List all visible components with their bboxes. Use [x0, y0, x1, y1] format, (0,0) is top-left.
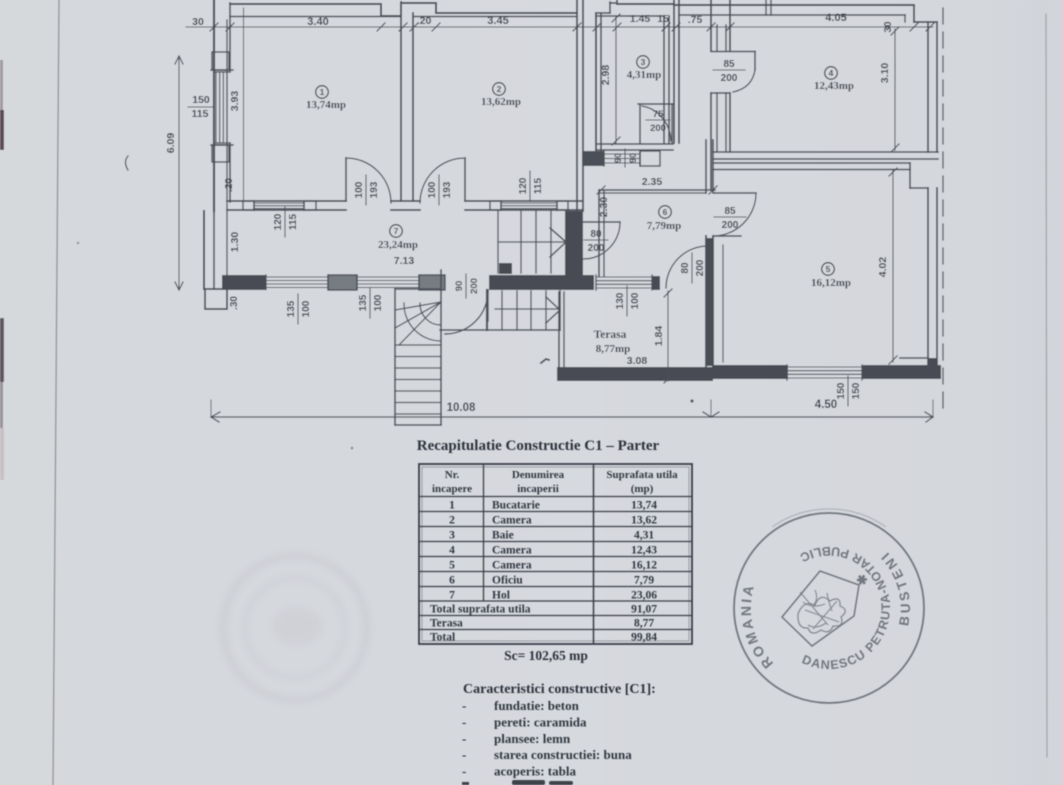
svg-text:30: 30	[192, 16, 204, 28]
svg-text:115: 115	[288, 213, 299, 230]
svg-text:Total: Total	[430, 632, 455, 644]
svg-text:200: 200	[469, 278, 480, 294]
svg-text:13,74mp: 13,74mp	[306, 99, 346, 111]
svg-text:85: 85	[724, 206, 736, 217]
svg-text:Hol: Hol	[492, 590, 510, 602]
svg-text:135: 135	[358, 294, 369, 311]
svg-text:13,74: 13,74	[631, 500, 657, 512]
svg-text:200: 200	[721, 73, 738, 84]
svg-text:120: 120	[273, 213, 284, 230]
svg-text:15: 15	[657, 13, 669, 25]
svg-text:plansee: lemn: plansee: lemn	[494, 731, 571, 746]
svg-text:5: 5	[826, 264, 831, 274]
svg-text:10.08: 10.08	[447, 402, 476, 414]
svg-text:90: 90	[613, 153, 623, 163]
svg-text:-: -	[462, 764, 466, 779]
svg-text:3.40: 3.40	[307, 16, 328, 28]
svg-text:200: 200	[722, 220, 739, 231]
svg-text:-: -	[462, 747, 466, 762]
svg-text:2: 2	[497, 84, 502, 94]
svg-text:16,12: 16,12	[631, 560, 657, 572]
svg-text:7,79: 7,79	[634, 575, 654, 587]
svg-text:7.13: 7.13	[394, 255, 415, 267]
svg-text:90: 90	[628, 153, 638, 163]
svg-text:75: 75	[653, 109, 664, 120]
svg-text:1.30: 1.30	[229, 232, 241, 253]
svg-text:.20: .20	[224, 178, 235, 192]
svg-text:13,62mp: 13,62mp	[481, 96, 521, 108]
svg-text:.20: .20	[417, 15, 432, 27]
svg-text:Oficiu: Oficiu	[492, 575, 523, 587]
svg-text:100: 100	[630, 292, 641, 309]
svg-text:7: 7	[449, 590, 455, 602]
svg-text:30: 30	[883, 21, 894, 33]
svg-text:3.45: 3.45	[487, 15, 508, 27]
svg-text:4,31mp: 4,31mp	[627, 69, 662, 81]
svg-text:Baie: Baie	[492, 530, 514, 542]
svg-text:6: 6	[449, 575, 455, 587]
svg-text:4: 4	[829, 68, 834, 78]
svg-text:100: 100	[427, 181, 438, 198]
svg-text:1: 1	[320, 87, 325, 97]
svg-text:4.50: 4.50	[815, 399, 837, 411]
svg-text:1.45: 1.45	[630, 13, 651, 25]
svg-text:-: -	[462, 731, 466, 746]
svg-text:4,31: 4,31	[634, 530, 654, 542]
svg-text:Recapitulatie Constructie C1 –: Recapitulatie Constructie C1 – Parter	[417, 438, 660, 454]
svg-text:200: 200	[588, 243, 605, 254]
svg-text:Suprafata utila: Suprafata utila	[606, 469, 678, 481]
svg-text:150: 150	[851, 382, 862, 399]
svg-text:3: 3	[641, 57, 646, 67]
svg-text:4: 4	[449, 545, 455, 557]
svg-text:starea constructiei: buna: starea constructiei: buna	[494, 747, 632, 762]
svg-text:99,84: 99,84	[631, 632, 657, 644]
svg-text:8,77: 8,77	[634, 618, 654, 630]
svg-text:Terasa: Terasa	[594, 329, 627, 341]
svg-text:Camera: Camera	[492, 515, 532, 527]
svg-text:193: 193	[442, 181, 453, 198]
svg-text:200: 200	[650, 123, 666, 134]
svg-text:-: -	[462, 714, 466, 729]
svg-text:16,12mp: 16,12mp	[811, 277, 851, 289]
svg-text:150: 150	[192, 94, 210, 106]
svg-text:.75: .75	[688, 14, 703, 26]
svg-text:13,62: 13,62	[631, 515, 657, 527]
svg-text:115: 115	[533, 177, 544, 194]
svg-text:85: 85	[723, 59, 735, 70]
svg-text:Camera: Camera	[492, 560, 532, 572]
svg-text:3.93: 3.93	[229, 91, 241, 112]
svg-text:Bucatarie: Bucatarie	[492, 500, 540, 512]
svg-text:incapere: incapere	[432, 483, 472, 495]
svg-text:91,07: 91,07	[631, 604, 657, 616]
svg-text:(mp): (mp)	[631, 483, 654, 495]
svg-text:193: 193	[369, 181, 380, 198]
svg-text:23,24mp: 23,24mp	[378, 239, 418, 251]
svg-text:Sc= 102,65 mp: Sc= 102,65 mp	[504, 648, 588, 663]
svg-text:135: 135	[286, 300, 297, 317]
svg-text:150: 150	[836, 382, 847, 399]
svg-text:12,43: 12,43	[631, 545, 657, 557]
svg-text:2.30: 2.30	[598, 197, 610, 218]
svg-text:2: 2	[449, 515, 455, 527]
svg-text:7,79mp: 7,79mp	[647, 220, 682, 232]
svg-text:80: 80	[590, 229, 602, 240]
svg-text:3: 3	[449, 530, 455, 542]
svg-text:Total suprafata utila: Total suprafata utila	[430, 604, 531, 616]
svg-text:4.02: 4.02	[877, 257, 889, 278]
svg-text:1: 1	[449, 500, 455, 512]
svg-text:90: 90	[454, 281, 465, 292]
svg-text:2.35: 2.35	[642, 176, 663, 188]
svg-text:1.84: 1.84	[653, 326, 665, 347]
svg-text:incaperii: incaperii	[517, 483, 559, 495]
svg-text:pereti: caramida: pereti: caramida	[494, 714, 587, 729]
svg-text:120: 120	[518, 177, 529, 194]
svg-text:Caracteristici constructive [C: Caracteristici constructive [C1]:	[463, 682, 656, 697]
svg-text:130: 130	[615, 292, 626, 309]
svg-text:3.10: 3.10	[879, 63, 891, 84]
svg-text:3.08: 3.08	[627, 355, 648, 367]
svg-text:Camera: Camera	[492, 545, 532, 557]
svg-text:4.05: 4.05	[825, 12, 846, 24]
svg-text:200: 200	[695, 259, 706, 276]
svg-text:Terasa: Terasa	[430, 618, 463, 630]
svg-text:100: 100	[354, 181, 365, 198]
svg-text:Denumirea: Denumirea	[512, 469, 565, 481]
svg-text:80: 80	[680, 262, 691, 274]
svg-text:6: 6	[663, 207, 668, 217]
svg-text:8,77mp: 8,77mp	[596, 343, 631, 355]
svg-text:Nr.: Nr.	[445, 469, 460, 481]
svg-text:acoperis: tabla: acoperis: tabla	[494, 764, 576, 779]
svg-text:7: 7	[394, 226, 399, 236]
svg-text:100: 100	[301, 300, 312, 317]
svg-text:2.98: 2.98	[600, 65, 612, 86]
svg-text:.30: .30	[229, 296, 240, 310]
svg-text:100: 100	[373, 294, 384, 311]
svg-text:115: 115	[192, 108, 209, 120]
svg-text:6.09: 6.09	[165, 133, 177, 154]
svg-text:23,06: 23,06	[631, 590, 657, 602]
svg-text:12,43mp: 12,43mp	[814, 80, 854, 92]
svg-text:fundatie: beton: fundatie: beton	[494, 698, 580, 713]
svg-text:-: -	[462, 698, 466, 713]
svg-text:5: 5	[449, 560, 455, 572]
